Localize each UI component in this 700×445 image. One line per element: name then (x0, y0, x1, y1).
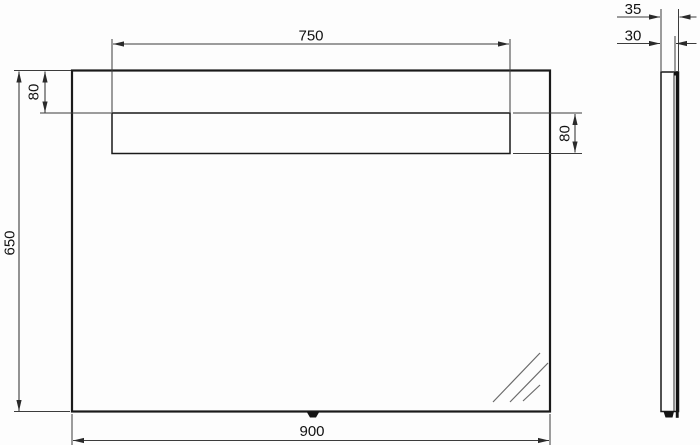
overall-width-label: 900 (299, 423, 324, 440)
dimension-body-depth: 30 (617, 28, 697, 72)
front-mounting-tab (307, 412, 320, 418)
mirror-front-outline (72, 71, 550, 412)
side-glass-edge (676, 71, 679, 418)
strip-top-offset-label: 80 (25, 84, 42, 101)
side-mounting-foot (664, 412, 675, 418)
front-view (72, 71, 550, 418)
overall-height-label: 650 (1, 230, 18, 255)
body-depth-label: 30 (625, 28, 642, 45)
strip-height-label: 80 (556, 125, 573, 142)
dimension-overall-width: 900 (72, 414, 550, 445)
light-strip-outline (112, 113, 510, 154)
strip-width-label: 750 (298, 28, 323, 45)
dimension-strip-height: 80 (513, 113, 582, 154)
total-depth-label: 35 (625, 1, 642, 18)
side-top-cap (674, 72, 679, 76)
dimension-strip-top-offset: 80 (14, 71, 111, 114)
technical-drawing-canvas: 750 80 650 80 900 35 (0, 0, 700, 445)
glass-hatch-icon (493, 353, 548, 402)
dimension-overall-height: 650 (1, 72, 70, 412)
side-view (661, 71, 679, 418)
